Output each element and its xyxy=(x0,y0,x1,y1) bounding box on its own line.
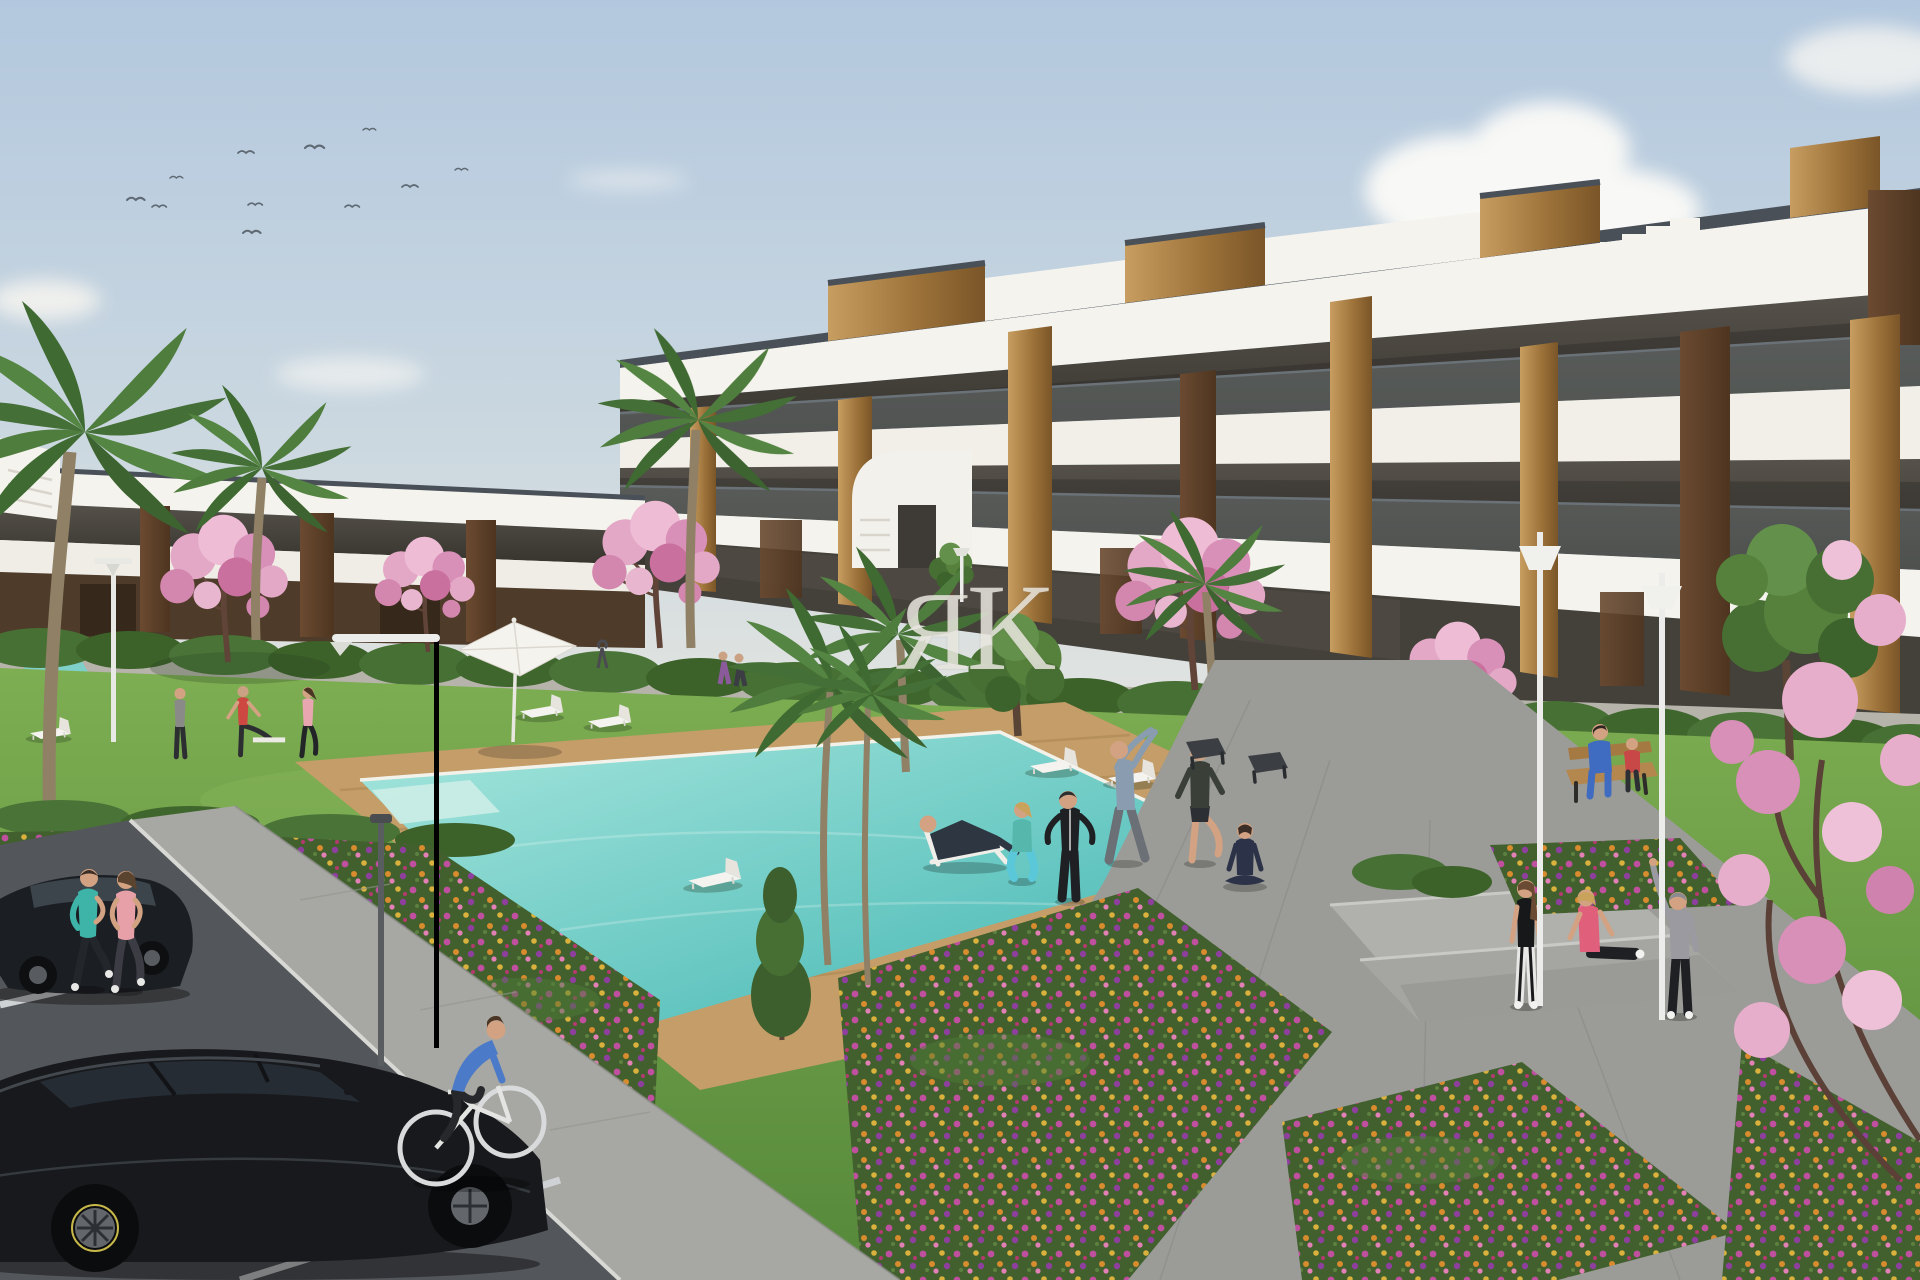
render-scene: Я K xyxy=(0,0,1920,1280)
cloud-left-2 xyxy=(275,357,425,391)
scene-canvas xyxy=(0,0,1920,1280)
cloud-wisp-center xyxy=(568,169,688,191)
